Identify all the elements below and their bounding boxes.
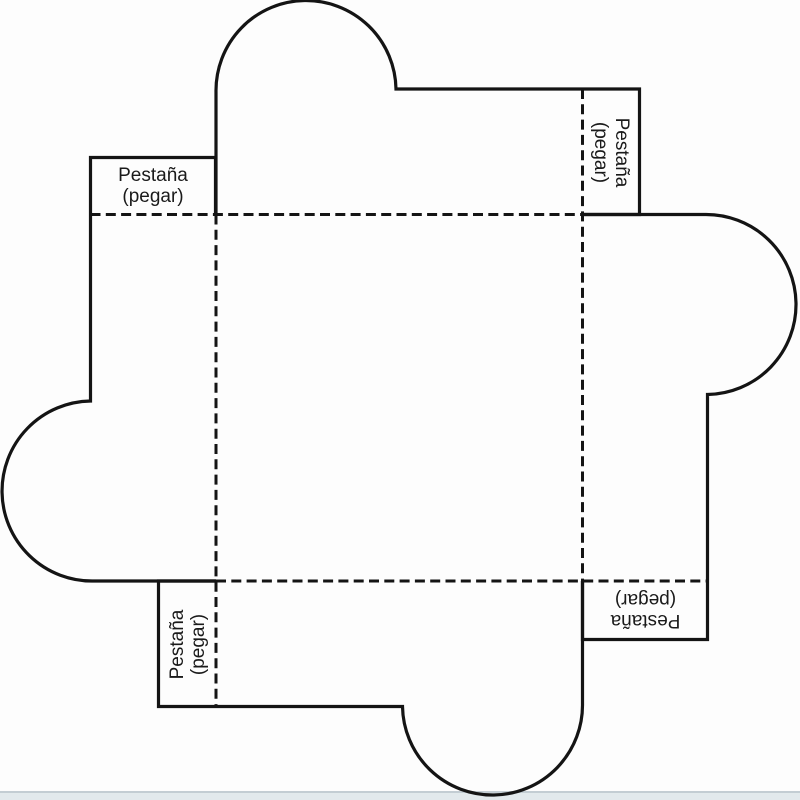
right-flap-outline [583, 214, 797, 639]
left-flap-outline [2, 158, 216, 582]
tab-label-line1: Pestaña [166, 609, 187, 679]
bottom-band [0, 793, 800, 800]
tab-label-line1: Pestaña [118, 165, 188, 186]
tab-label-line1: Pestaña [610, 610, 680, 631]
tab-label-line2: (pegar) [590, 121, 611, 182]
bottom-band-border [0, 791, 800, 793]
tab-label-bottom-left: Pestaña (pegar) [159, 582, 216, 707]
tab-label-line2: (pegar) [614, 589, 675, 610]
tab-label-line2: (pegar) [122, 186, 183, 207]
template-outline-svg [0, 0, 800, 800]
box-template-diagram: Pestaña (pegar) Pestaña (pegar) Pestaña … [0, 0, 800, 800]
cut-lines [2, 1, 796, 795]
tab-label-top-left: Pestaña (pegar) [91, 158, 216, 215]
tab-label-line2: (pegar) [187, 613, 208, 674]
tab-label-line1: Pestaña [611, 117, 632, 187]
bottom-flap-outline [159, 581, 583, 795]
top-flap-outline [216, 1, 640, 215]
tab-label-top-right: Pestaña (pegar) [583, 90, 640, 215]
tab-label-bottom-right: Pestaña (pegar) [583, 582, 708, 639]
